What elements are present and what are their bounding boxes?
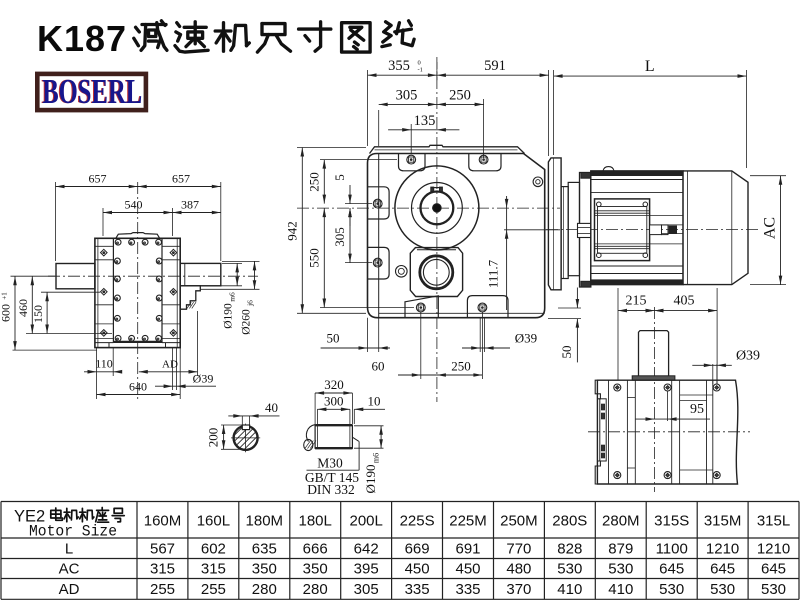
svg-text:160L: 160L [197,513,230,530]
svg-text:405: 405 [674,294,695,309]
svg-text:280S: 280S [552,513,587,530]
svg-text:150: 150 [31,305,45,323]
svg-text:300: 300 [324,393,344,408]
svg-text:645: 645 [659,561,684,578]
svg-text:40: 40 [265,400,278,415]
svg-text:350: 350 [303,561,328,578]
svg-text:180L: 180L [299,513,332,530]
svg-text:645: 645 [761,561,786,578]
svg-text:602: 602 [201,541,226,558]
svg-text:1210: 1210 [706,541,739,558]
svg-text:600: 600 [0,304,13,322]
svg-text:0: 0 [418,60,421,67]
svg-text:395: 395 [354,561,379,578]
svg-text:110: 110 [95,357,113,371]
svg-text:567: 567 [150,541,175,558]
svg-text:-1: -1 [418,67,423,74]
svg-text:Ø39: Ø39 [736,349,760,364]
svg-text:50: 50 [559,346,574,359]
svg-text:828: 828 [557,541,582,558]
svg-text:530: 530 [608,561,633,578]
svg-text:250M: 250M [500,513,538,530]
svg-text:591: 591 [484,58,506,74]
svg-text:AD: AD [162,359,178,371]
svg-text:1100: 1100 [656,541,688,558]
svg-text:450: 450 [455,561,480,578]
svg-text:691: 691 [455,541,480,558]
svg-text:879: 879 [608,541,633,558]
svg-text:666: 666 [303,541,328,558]
svg-text:AC: AC [59,561,80,578]
svg-text:387: 387 [181,198,199,212]
svg-text:+1: +1 [1,292,9,300]
svg-text:530: 530 [710,581,735,598]
svg-text:1210: 1210 [757,541,790,558]
svg-text:AD: AD [59,581,80,598]
svg-text:Motor Size: Motor Size [29,523,117,541]
svg-text:Ø260: Ø260 [240,309,252,335]
svg-text:315M: 315M [704,513,742,530]
svg-text:370: 370 [506,581,531,598]
svg-text:305: 305 [332,227,347,247]
svg-text:5: 5 [332,174,347,181]
svg-text:280: 280 [252,581,277,598]
svg-text:BOSERL: BOSERL [42,72,142,111]
svg-text:m6: m6 [228,292,237,302]
svg-text:355: 355 [388,58,410,74]
svg-text:180M: 180M [246,513,284,530]
svg-text:255: 255 [201,581,226,598]
svg-text:135: 135 [414,113,436,129]
svg-text:L: L [65,541,73,558]
svg-text:200: 200 [206,428,221,448]
svg-text:280: 280 [303,581,328,598]
svg-text:215: 215 [626,294,647,309]
svg-text:m6: m6 [371,453,380,463]
svg-text:410: 410 [557,581,582,598]
svg-text:645: 645 [710,561,735,578]
svg-text:657: 657 [172,172,190,186]
svg-text:M30: M30 [317,456,343,471]
svg-text:320: 320 [324,377,344,392]
svg-text:Ø39: Ø39 [515,331,537,346]
svg-text:j6: j6 [245,300,254,307]
svg-text:530: 530 [761,581,786,598]
svg-text:770: 770 [506,541,531,558]
svg-text:315L: 315L [757,513,790,530]
svg-text:Ø190: Ø190 [363,465,378,494]
svg-text:540: 540 [125,198,143,212]
svg-text:642: 642 [354,541,379,558]
svg-text:Ø190: Ø190 [223,303,235,329]
svg-text:657: 657 [89,172,107,186]
svg-text:640: 640 [129,380,147,394]
svg-text:669: 669 [405,541,430,558]
svg-text:L: L [645,58,655,75]
svg-text:315: 315 [201,561,226,578]
svg-text:95: 95 [690,402,704,417]
svg-text:225M: 225M [449,513,487,530]
svg-text:460: 460 [16,299,30,317]
svg-text:410: 410 [608,581,633,598]
svg-text:335: 335 [405,581,430,598]
svg-text:305: 305 [396,88,418,104]
svg-text:350: 350 [252,561,277,578]
svg-text:942: 942 [285,221,300,241]
svg-text:AC: AC [761,217,778,239]
svg-text:111.7: 111.7 [486,259,501,288]
svg-text:250: 250 [307,172,322,192]
svg-text:530: 530 [557,561,582,578]
svg-text:480: 480 [506,561,531,578]
svg-text:Ø39: Ø39 [193,372,214,386]
svg-text:305: 305 [354,581,379,598]
svg-text:280M: 280M [602,513,640,530]
svg-text:225S: 225S [400,513,435,530]
svg-text:10: 10 [368,393,381,408]
svg-text:335: 335 [455,581,480,598]
svg-text:255: 255 [150,581,175,598]
svg-text:60: 60 [372,359,385,374]
svg-text:200L: 200L [350,513,383,530]
svg-text:550: 550 [307,248,322,268]
svg-text:K187: K187 [37,18,127,59]
svg-text:450: 450 [405,561,430,578]
svg-text:50: 50 [327,331,340,346]
svg-text:250: 250 [449,88,471,104]
svg-text:250: 250 [451,359,471,374]
svg-text:635: 635 [252,541,277,558]
svg-text:315S: 315S [654,513,689,530]
svg-text:315: 315 [150,561,175,578]
svg-text:160M: 160M [144,513,182,530]
svg-text:DIN 332: DIN 332 [307,482,355,497]
svg-text:530: 530 [659,581,684,598]
